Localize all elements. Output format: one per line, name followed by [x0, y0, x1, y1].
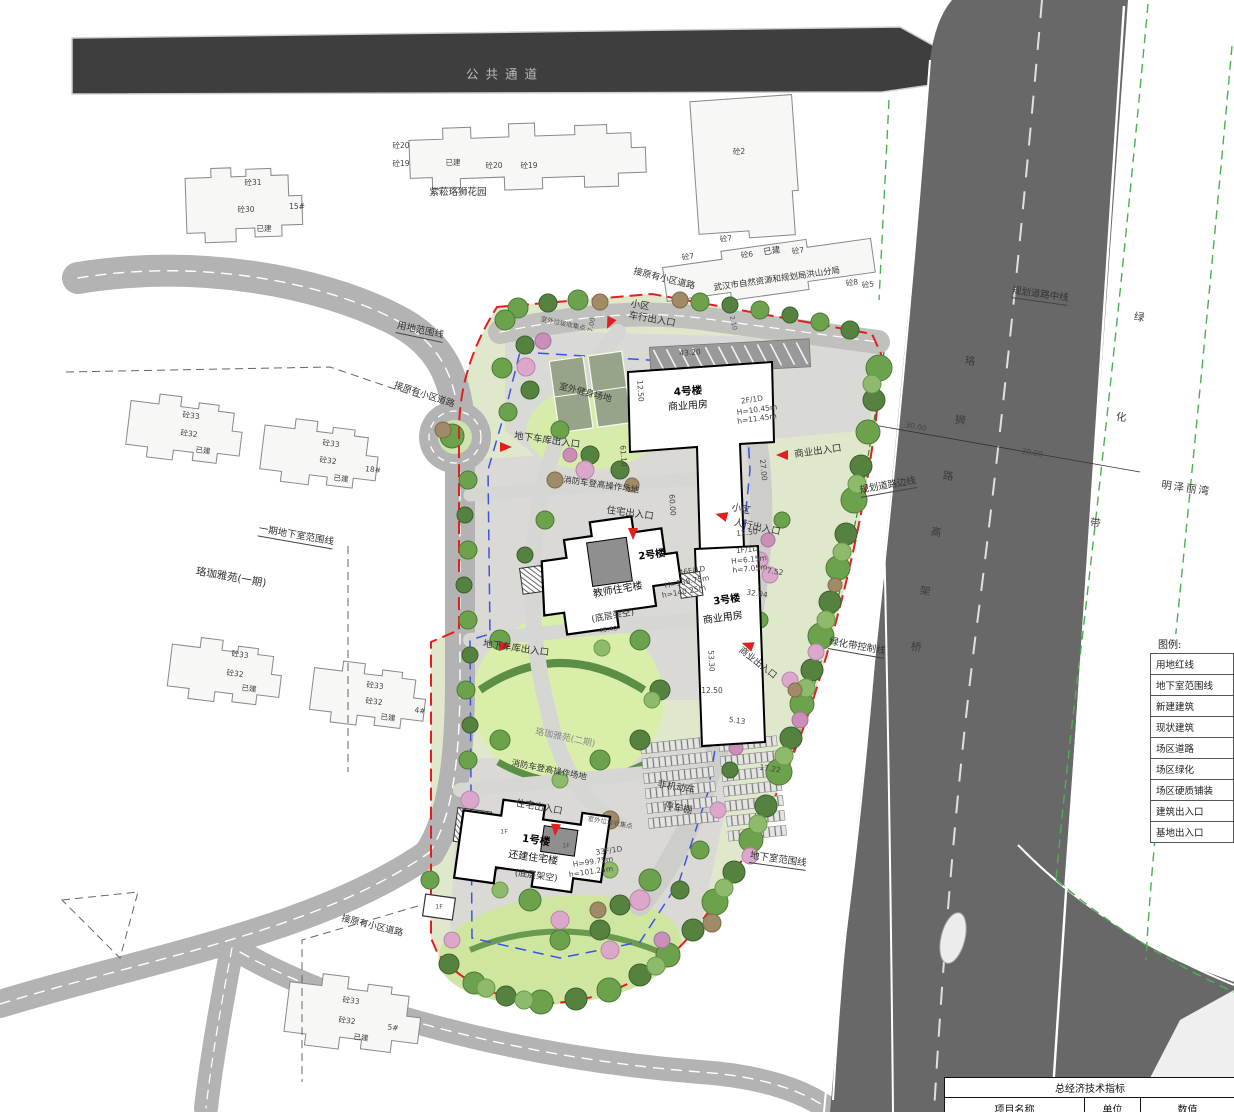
dim: 43.20 — [679, 348, 701, 357]
legend-item-existing-building: 现状建筑 — [1150, 716, 1234, 738]
site-plan-canvas: 公共通道 砼31 砼30 15# 已建 砼20 砼19 已建 砼20 砼19 紫… — [0, 0, 1234, 1112]
existing-bldg-label: 已建 — [353, 1033, 369, 1043]
legend-item-new-building: 新建建筑 — [1150, 695, 1234, 717]
existing-bldg-label: 砼7 — [681, 252, 694, 262]
dim: 61.10 — [618, 445, 627, 467]
zisong-garden-label: 紫菘珞狮花园 — [429, 188, 486, 198]
dim: 12.50 — [701, 687, 722, 695]
legend-item-red-line: 用地红线 — [1150, 653, 1234, 675]
existing-bldg-label: 砼19 — [392, 160, 409, 168]
dim: 53.30 — [707, 650, 716, 672]
greenbelt-char: 化 — [1115, 412, 1127, 424]
viaduct-char: 路 — [942, 471, 954, 483]
existing-bldg-label: 砼20 — [485, 162, 502, 170]
economic-indicators-table: 总经济技术指标 项目名称 单位 数值 — [944, 1077, 1234, 1112]
dim: 2.10 — [728, 315, 738, 331]
existing-bldg-label: 已建 — [333, 474, 349, 484]
legend-item-greenery: 场区绿化 — [1150, 758, 1234, 780]
greenbelt-char: 绿 — [1133, 312, 1145, 324]
existing-bldg-label: 已建 — [195, 446, 211, 456]
existing-bldg-label: 18# — [365, 465, 382, 475]
dim: 27.00 — [758, 459, 768, 481]
existing-bldg-label: 5# — [387, 1023, 399, 1032]
public-passage-road — [72, 27, 938, 94]
viaduct-char: 桥 — [910, 642, 922, 654]
legend-item-underground: 地下室范围线 — [1150, 674, 1234, 696]
dim: 12.50 — [635, 380, 644, 402]
legend-item-paving: 场区硬质铺装 — [1150, 779, 1234, 801]
table-header-unit: 单位 — [1085, 1098, 1141, 1112]
viaduct-char: 狮 — [954, 415, 966, 427]
public-passage-label: 公共通道 — [466, 67, 544, 80]
existing-bldg-label: 砼30 — [237, 206, 254, 214]
legend: 图例: 用地红线 地下室范围线 新建建筑 现状建筑 场区道路 场区绿化 场区硬质… — [1150, 634, 1234, 843]
existing-bldg-label: 砼31 — [244, 179, 261, 187]
existing-bldg-label: 砼7 — [791, 246, 804, 256]
floor-tag: 1F — [562, 843, 570, 850]
existing-bldg-label: 已建 — [446, 159, 461, 167]
existing-bldg-label: 砼7 — [719, 234, 732, 244]
dim: 60.00 — [667, 494, 676, 516]
table-header-item-name: 项目名称 — [945, 1098, 1085, 1112]
table-header-value: 数值 — [1141, 1098, 1234, 1112]
viaduct-char: 架 — [919, 586, 931, 598]
existing-bldg-label: 15# — [289, 203, 305, 211]
plan-graphics — [0, 0, 1234, 1112]
existing-bldg-label: 砼8 — [845, 278, 858, 288]
existing-bldg-label: 砼6 — [740, 250, 753, 260]
legend-item-site-entrance: 基地出入口 — [1150, 821, 1234, 843]
existing-bldg-label: 砼5 — [861, 280, 874, 290]
greenbelt-char: 带 — [1089, 518, 1101, 530]
floor-tag: 1F — [500, 829, 508, 836]
legend-item-building-entrance: 建筑出入口 — [1150, 800, 1234, 822]
viaduct-char: 高 — [930, 527, 942, 539]
floor-tag: 1F — [435, 904, 443, 911]
roundabout — [419, 401, 491, 473]
existing-bldg-label: 已建 — [241, 684, 257, 694]
existing-bldg-label: 砼19 — [520, 162, 537, 170]
existing-bldg-label: 砼2 — [733, 148, 745, 156]
existing-bldg-label: 已建 — [257, 225, 272, 233]
building-4-name: 4号楼 — [673, 386, 702, 399]
table-title: 总经济技术指标 — [945, 1078, 1234, 1098]
existing-bldg-label: 已建 — [380, 713, 396, 723]
legend-title: 图例: — [1150, 634, 1234, 654]
legend-item-site-road: 场区道路 — [1150, 737, 1234, 759]
existing-bldg-label: 4# — [414, 706, 426, 715]
viaduct-char: 珞 — [964, 356, 976, 368]
existing-bldg-label: 砼20 — [392, 142, 409, 150]
